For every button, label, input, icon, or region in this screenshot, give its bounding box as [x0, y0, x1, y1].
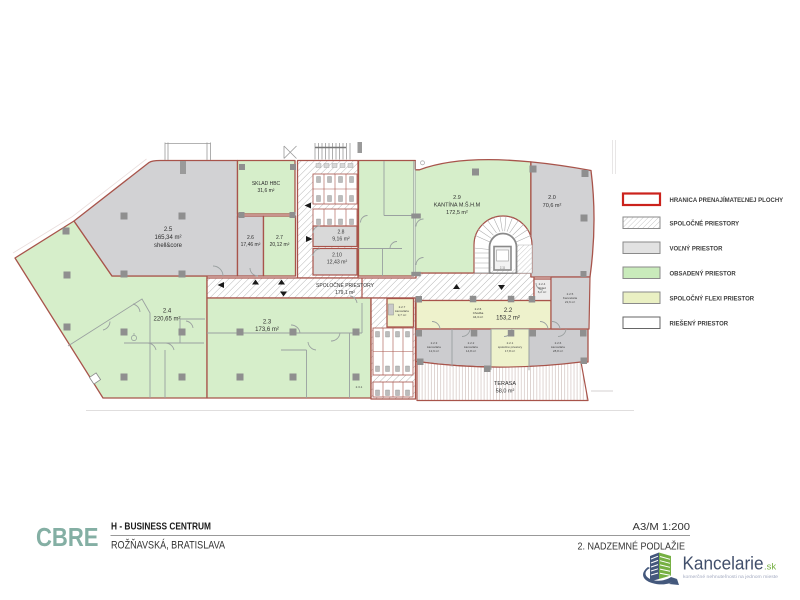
svg-text:2.11: 2.11	[500, 266, 506, 270]
svg-text:CBRE: CBRE	[36, 524, 99, 552]
svg-text:31,6 m²: 31,6 m²	[258, 188, 275, 194]
svg-text:2.4: 2.4	[163, 309, 172, 315]
svg-text:ROŽŇAVSKÁ, BRATISLAVA: ROŽŇAVSKÁ, BRATISLAVA	[111, 539, 226, 552]
svg-text:HRANICA PRENAJÍMATEĽNEJ PLOCHY: HRANICA PRENAJÍMATEĽNEJ PLOCHY	[670, 196, 784, 204]
svg-text:70,6 m²: 70,6 m²	[543, 203, 562, 209]
svg-text:A3/M 1:200: A3/M 1:200	[633, 521, 691, 533]
svg-text:44,3 m²: 44,3 m²	[473, 315, 483, 319]
svg-text:komerčné nehnuteľnosti na jedn: komerčné nehnuteľnosti na jednom mieste	[683, 574, 779, 579]
svg-text:SPOLOČNÉ PRIESTORY: SPOLOČNÉ PRIESTORY	[670, 220, 740, 228]
svg-text:2.5: 2.5	[164, 227, 173, 233]
svg-text:17,8 m²: 17,8 m²	[505, 349, 515, 353]
svg-text:20,12 m²: 20,12 m²	[270, 242, 290, 248]
svg-text:58,0 m²: 58,0 m²	[496, 389, 515, 395]
svg-text:2.8: 2.8	[338, 230, 345, 236]
svg-text:shell&core: shell&core	[154, 243, 183, 249]
svg-text:2.2: 2.2	[504, 308, 513, 314]
svg-text:172,5 m²: 172,5 m²	[446, 210, 468, 216]
svg-text:9,7 m²: 9,7 m²	[398, 313, 407, 317]
svg-text:173,6 m²: 173,6 m²	[255, 327, 279, 333]
svg-text:17,46 m²: 17,46 m²	[241, 242, 261, 248]
svg-text:VOĽNÝ PRIESTOR: VOĽNÝ PRIESTOR	[670, 246, 724, 253]
svg-text:2.10: 2.10	[332, 253, 342, 259]
svg-text:2. NADZEMNÉ PODLAŽIE: 2. NADZEMNÉ PODLAŽIE	[578, 540, 686, 553]
svg-text:179,1 m²: 179,1 m²	[335, 290, 355, 296]
svg-text:2.7: 2.7	[276, 235, 283, 241]
svg-text:28,8 m²: 28,8 m²	[553, 349, 563, 353]
svg-text:14,8 m²: 14,8 m²	[466, 349, 476, 353]
svg-text:SPOLOČNÝ FLEXI PRIESTOR: SPOLOČNÝ FLEXI PRIESTOR	[670, 296, 755, 303]
svg-text:Kancelarie: Kancelarie	[683, 553, 764, 574]
svg-text:.sk: .sk	[764, 562, 776, 573]
svg-text:9,16 m²: 9,16 m²	[332, 237, 350, 243]
svg-text:OBSADENÝ PRIESTOR: OBSADENÝ PRIESTOR	[670, 271, 737, 278]
svg-text:165,34 m²: 165,34 m²	[154, 235, 181, 241]
svg-text:2.3.1: 2.3.1	[356, 385, 363, 389]
svg-text:220,65 m²: 220,65 m²	[153, 317, 180, 323]
svg-text:RIEŠENÝ PRIESTOR: RIEŠENÝ PRIESTOR	[670, 320, 729, 328]
svg-text:2.6: 2.6	[247, 235, 254, 241]
svg-text:SPOLOČNÉ PRIESTORY: SPOLOČNÉ PRIESTORY	[316, 282, 375, 289]
svg-text:SKLAD HBC: SKLAD HBC	[252, 181, 281, 187]
svg-text:12,43 m²: 12,43 m²	[327, 260, 348, 266]
svg-text:12,9 m²: 12,9 m²	[429, 349, 439, 353]
svg-text:KANTÍNA M.Š.H.M: KANTÍNA M.Š.H.M	[434, 202, 481, 209]
svg-text:6,2 m²: 6,2 m²	[538, 290, 547, 294]
svg-text:2.9: 2.9	[453, 195, 461, 201]
svg-text:H - BUSINESS CENTRUM: H - BUSINESS CENTRUM	[111, 521, 211, 533]
svg-text:22,6 m²: 22,6 m²	[565, 300, 575, 304]
svg-text:153,2 m²: 153,2 m²	[496, 316, 520, 322]
svg-text:TERASA: TERASA	[494, 381, 516, 387]
svg-text:2.0: 2.0	[548, 195, 556, 201]
svg-text:2.3: 2.3	[263, 320, 272, 326]
